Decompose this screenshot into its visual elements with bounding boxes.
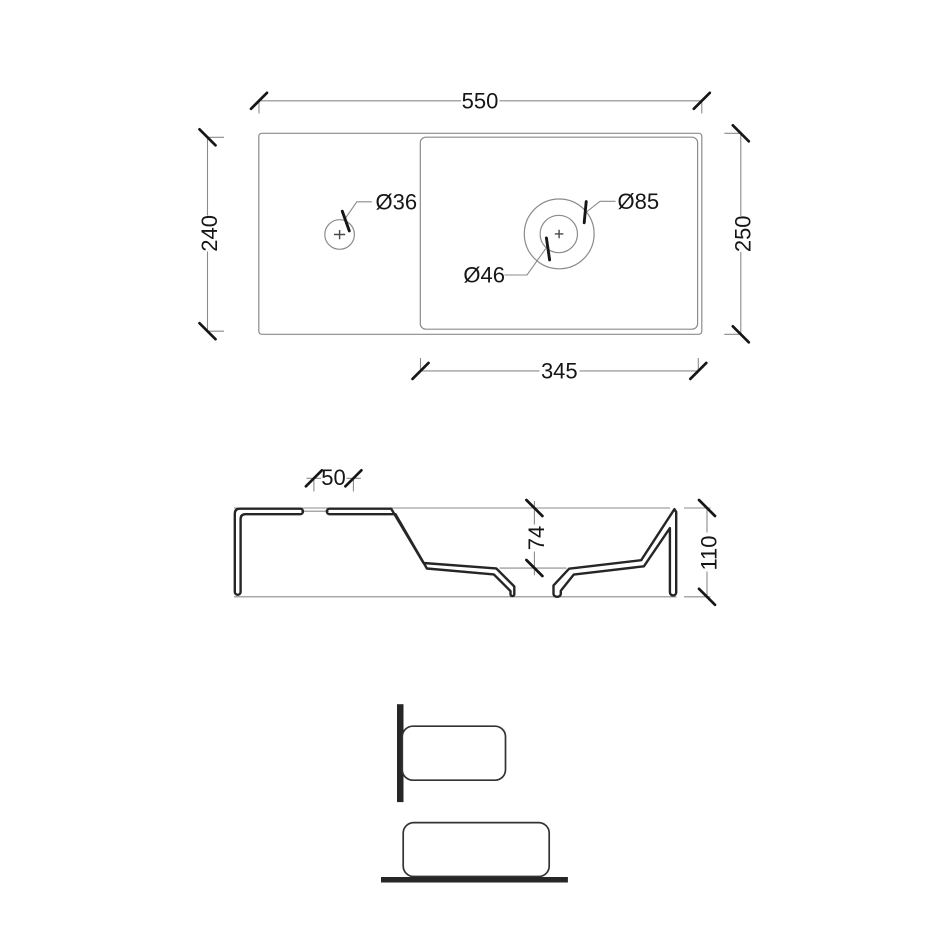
svg-text:110: 110 (697, 535, 722, 570)
svg-text:Ø85: Ø85 (618, 189, 660, 214)
svg-text:50: 50 (321, 465, 345, 490)
svg-text:Ø36: Ø36 (376, 190, 418, 215)
svg-text:74: 74 (524, 526, 549, 550)
svg-text:550: 550 (462, 88, 499, 113)
svg-text:345: 345 (541, 358, 578, 383)
svg-text:Ø46: Ø46 (463, 263, 505, 288)
svg-text:250: 250 (730, 215, 755, 252)
svg-text:240: 240 (197, 215, 222, 252)
